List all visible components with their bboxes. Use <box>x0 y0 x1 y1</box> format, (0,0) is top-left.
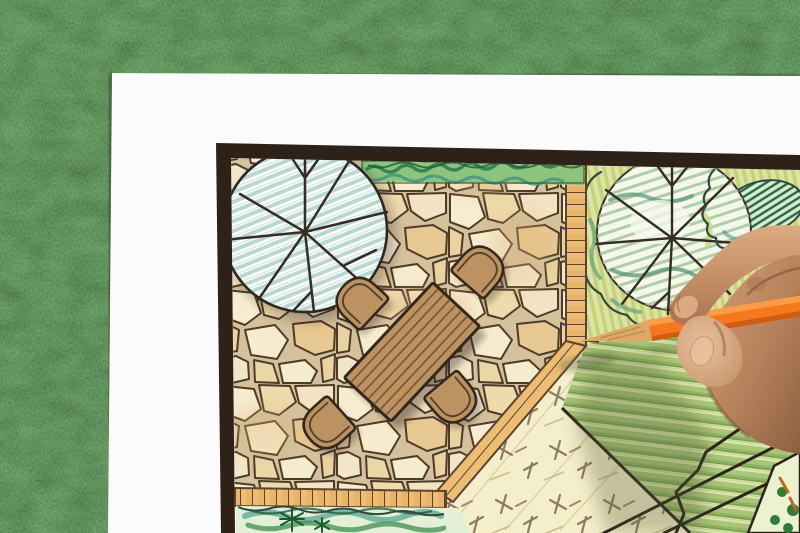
brick-edge-horizontal <box>235 488 446 508</box>
photo-scene <box>0 0 800 533</box>
brick-edge-vertical <box>566 164 586 346</box>
bottom-planting-bed <box>236 506 470 533</box>
garden-plan-photo <box>0 0 800 533</box>
knuckle-shading <box>747 277 767 291</box>
